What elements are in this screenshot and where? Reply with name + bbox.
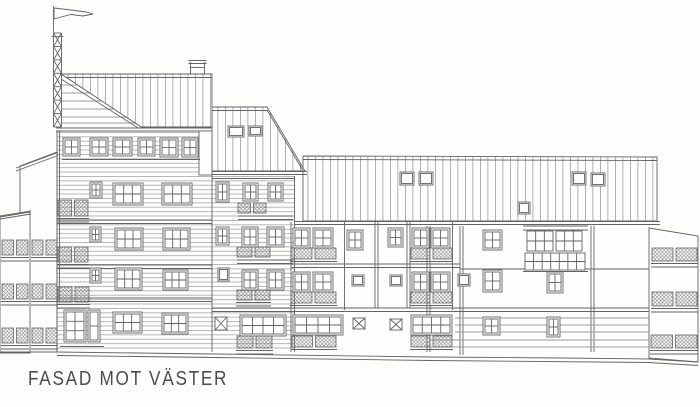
balcony-hatch	[676, 248, 697, 261]
balcony-hatch	[32, 328, 43, 343]
balcony-hatch	[75, 247, 89, 262]
balcony-hatch	[32, 240, 43, 255]
balcony-hatch	[652, 248, 673, 261]
balcony-hatch	[58, 200, 72, 216]
balcony-hatch	[75, 200, 89, 216]
balcony-hatch	[2, 328, 14, 343]
balcony-hatch	[316, 336, 337, 347]
balcony-hatch	[255, 247, 270, 257]
balcony-hatch	[46, 240, 57, 255]
balcony-hatch	[315, 292, 336, 303]
balcony-hatch	[652, 292, 673, 306]
drawing-title: FASAD MOT VÄSTER	[28, 368, 228, 391]
balcony-hatch	[291, 248, 312, 259]
balcony-hatch	[256, 336, 272, 348]
balcony-hatch	[2, 284, 14, 299]
balcony-hatch	[2, 240, 14, 255]
balcony-hatch	[254, 203, 267, 213]
facade-line-work	[0, 6, 698, 366]
balcony-hatch	[237, 247, 252, 257]
balcony-hatch	[75, 287, 89, 302]
facade-elevation-drawing	[0, 0, 700, 407]
balcony-hatch	[17, 328, 29, 343]
balcony-hatch	[46, 328, 57, 343]
balcony-hatch	[17, 240, 29, 255]
balcony-hatch	[17, 284, 29, 299]
balcony-hatch	[237, 290, 252, 300]
balcony-hatch	[237, 336, 253, 348]
balcony-hatch	[433, 336, 452, 347]
balcony-hatch	[433, 248, 452, 259]
right-wing-roof	[303, 156, 657, 221]
tower-roof	[212, 107, 305, 171]
balcony-hatch	[676, 292, 697, 306]
drawing-canvas: FASAD MOT VÄSTER	[0, 0, 700, 407]
balcony-hatch	[651, 335, 673, 348]
balcony-hatch	[411, 292, 430, 303]
balcony-hatch	[411, 336, 430, 347]
ground-line	[57, 356, 698, 366]
balcony-hatch	[433, 292, 452, 303]
balcony-hatch	[255, 290, 270, 300]
balcony-hatch	[58, 287, 72, 302]
tower-corner-strip	[199, 131, 212, 175]
balcony-hatch	[315, 248, 336, 259]
balcony-hatch	[58, 247, 72, 262]
balcony-hatch	[238, 203, 251, 213]
balcony-hatch	[46, 284, 57, 299]
balcony-hatch	[292, 336, 313, 347]
balcony-hatch	[32, 284, 43, 299]
balcony-hatch	[291, 292, 312, 303]
balcony-hatch	[676, 335, 698, 348]
balcony-hatch	[411, 248, 430, 259]
